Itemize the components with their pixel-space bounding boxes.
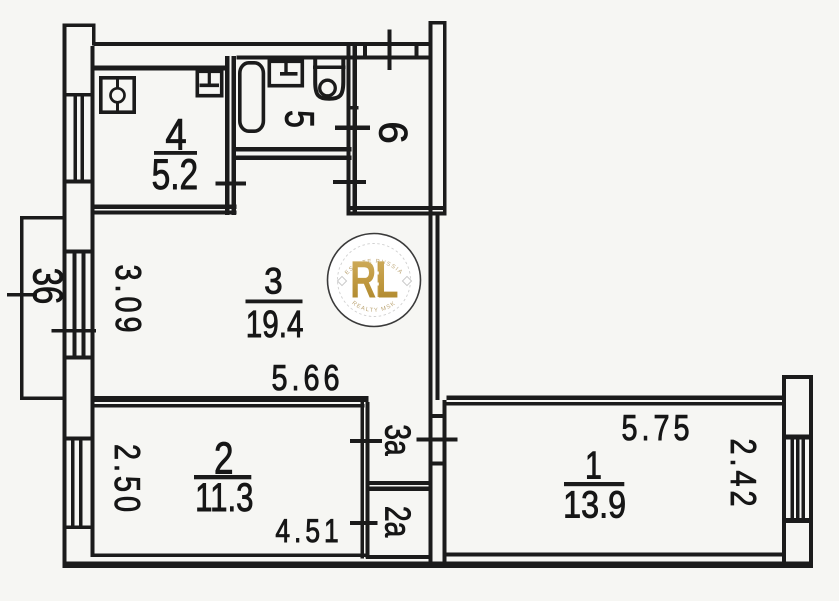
svg-text:5.2: 5.2 bbox=[152, 151, 199, 199]
svg-text:3.09: 3.09 bbox=[108, 264, 149, 336]
svg-text:3a: 3a bbox=[378, 424, 419, 456]
svg-text:RL: RL bbox=[350, 250, 398, 309]
svg-text:13.9: 13.9 bbox=[563, 485, 626, 527]
svg-text:4.51: 4.51 bbox=[275, 512, 342, 549]
svg-text:6: 6 bbox=[370, 121, 414, 143]
svg-text:2a: 2a bbox=[378, 506, 419, 538]
svg-text:11.3: 11.3 bbox=[195, 476, 253, 520]
svg-text:36: 36 bbox=[25, 268, 72, 304]
svg-text:5: 5 bbox=[276, 110, 322, 128]
svg-text:5.66: 5.66 bbox=[271, 357, 343, 398]
svg-text:2.50: 2.50 bbox=[107, 444, 148, 516]
svg-text:2.42: 2.42 bbox=[723, 438, 764, 510]
svg-text:1: 1 bbox=[585, 445, 602, 488]
svg-text:19.4: 19.4 bbox=[246, 304, 304, 346]
svg-text:5.75: 5.75 bbox=[621, 407, 693, 448]
svg-text:3: 3 bbox=[264, 261, 283, 302]
